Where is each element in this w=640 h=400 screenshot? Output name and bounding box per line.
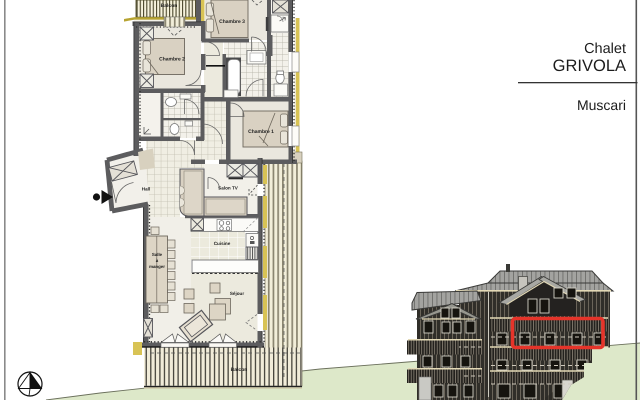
svg-text:Chalet: Chalet bbox=[584, 41, 626, 57]
svg-text:manger: manger bbox=[149, 264, 165, 269]
svg-text:Séjour: Séjour bbox=[230, 291, 245, 296]
svg-text:Cuisine: Cuisine bbox=[214, 241, 231, 246]
svg-text:Muscari: Muscari bbox=[577, 97, 626, 113]
svg-text:Hall: Hall bbox=[142, 187, 150, 192]
svg-text:Salle: Salle bbox=[152, 252, 163, 257]
svg-text:Balcon: Balcon bbox=[231, 367, 248, 373]
svg-text:GRIVOLA: GRIVOLA bbox=[553, 57, 626, 75]
svg-text:Chambre 1: Chambre 1 bbox=[248, 129, 274, 135]
svg-text:Chambre 2: Chambre 2 bbox=[159, 57, 185, 63]
svg-text:Balcon: Balcon bbox=[161, 3, 178, 9]
svg-text:Salon TV: Salon TV bbox=[218, 186, 239, 191]
svg-text:Chambre 3: Chambre 3 bbox=[219, 19, 245, 25]
